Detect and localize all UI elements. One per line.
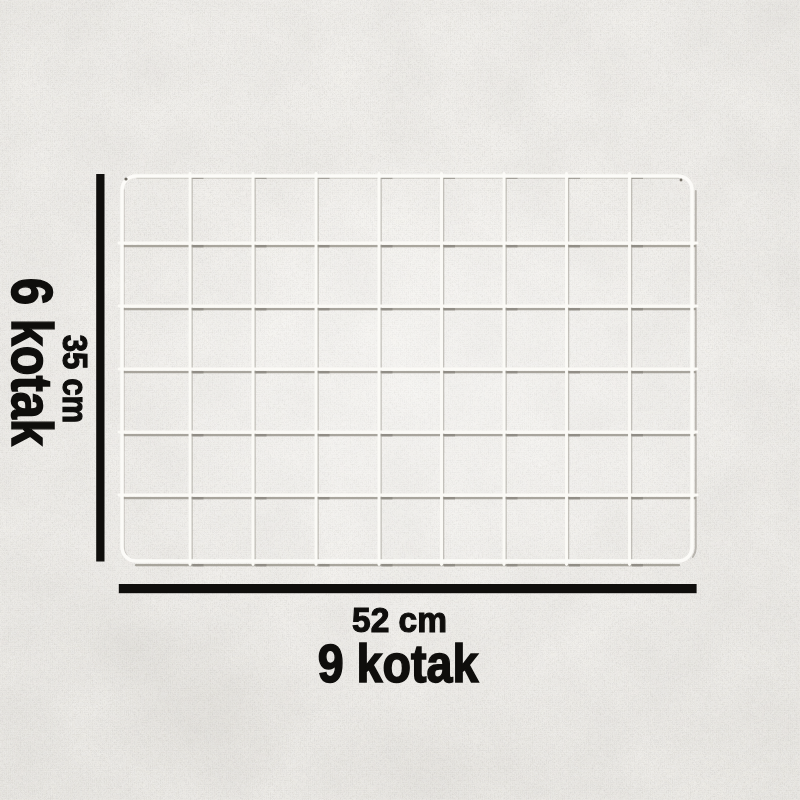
svg-text:52 cm: 52 cm (352, 600, 447, 639)
svg-text:9 kotak: 9 kotak (318, 634, 479, 693)
svg-text:6 kotak: 6 kotak (0, 278, 64, 446)
